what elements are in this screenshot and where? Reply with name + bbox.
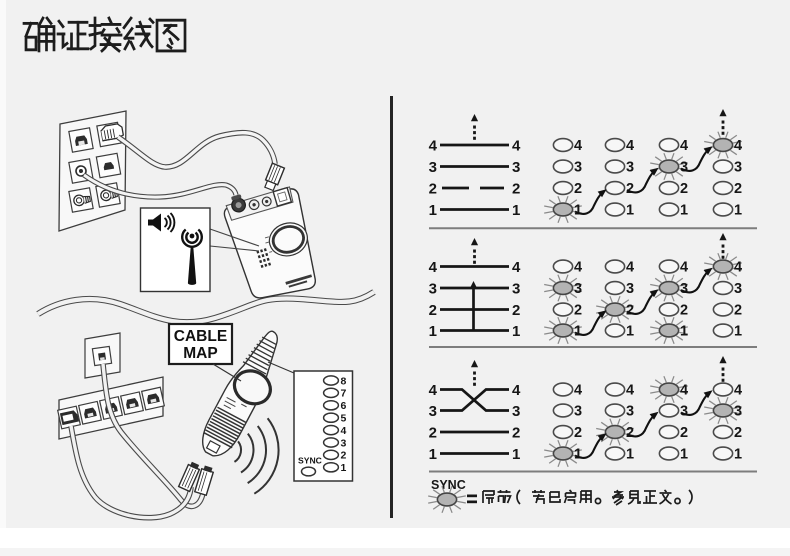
svg-text:4: 4 [680,260,688,276]
svg-text:3: 3 [680,404,688,420]
svg-text:7: 7 [341,388,347,400]
svg-text:3: 3 [626,404,634,420]
svg-text:1: 1 [626,324,634,340]
svg-text:1: 1 [429,446,437,463]
svg-text:1: 1 [574,447,582,463]
svg-text:3: 3 [512,159,520,176]
svg-text:2: 2 [574,425,582,441]
svg-text:2: 2 [626,181,634,197]
svg-text:2: 2 [512,425,520,442]
svg-text:4: 4 [626,138,634,154]
svg-text:1: 1 [341,462,347,474]
svg-text:4: 4 [626,260,634,276]
svg-text:4: 4 [680,138,688,154]
svg-text:2: 2 [680,181,688,197]
svg-text:2: 2 [734,181,742,197]
svg-text:4: 4 [512,138,521,155]
svg-text:1: 1 [574,324,582,340]
svg-text:2: 2 [512,302,520,319]
svg-text:1: 1 [680,203,688,219]
svg-text:4: 4 [734,383,742,399]
svg-text:5: 5 [341,413,347,425]
svg-text:1: 1 [680,324,688,340]
svg-text:1: 1 [512,323,520,340]
svg-text:4: 4 [734,138,742,154]
svg-text:4: 4 [512,259,521,276]
svg-text:1: 1 [626,447,634,463]
svg-text:4: 4 [512,382,521,399]
svg-text:2: 2 [512,181,520,198]
svg-text:3: 3 [734,281,742,297]
svg-text:2: 2 [680,425,688,441]
svg-text:3: 3 [574,404,582,420]
svg-text:8: 8 [341,375,347,387]
svg-text:4: 4 [626,383,634,399]
svg-text:3: 3 [680,160,688,176]
svg-text:3: 3 [512,403,520,420]
svg-text:3: 3 [429,403,437,420]
svg-text:3: 3 [626,281,634,297]
svg-text:SYNC: SYNC [298,456,322,466]
svg-text:1: 1 [512,446,520,463]
svg-text:3: 3 [734,160,742,176]
svg-text:1: 1 [429,202,437,219]
svg-text:2: 2 [429,425,437,442]
svg-text:3: 3 [574,160,582,176]
svg-text:3: 3 [341,437,347,449]
svg-text:3: 3 [429,159,437,176]
svg-text:1: 1 [626,203,634,219]
svg-text:4: 4 [574,138,582,154]
svg-text:4: 4 [341,425,347,437]
svg-text:1: 1 [734,447,742,463]
svg-text:2: 2 [734,425,742,441]
svg-text:1: 1 [734,203,742,219]
svg-text:1: 1 [512,202,520,219]
svg-text:3: 3 [626,160,634,176]
svg-text:4: 4 [429,138,438,155]
svg-text:2: 2 [626,303,634,319]
svg-text:1: 1 [734,324,742,340]
svg-text:2: 2 [574,181,582,197]
svg-text:1: 1 [429,323,437,340]
svg-text:2: 2 [680,303,688,319]
svg-text:4: 4 [574,260,582,276]
svg-text:1: 1 [574,203,582,219]
svg-text:4: 4 [734,260,742,276]
svg-text:CABLE: CABLE [174,328,227,345]
svg-text:4: 4 [680,383,688,399]
svg-text:2: 2 [574,303,582,319]
svg-text:2: 2 [341,450,347,462]
svg-text:6: 6 [341,400,347,412]
svg-text:3: 3 [574,281,582,297]
svg-text:3: 3 [734,404,742,420]
svg-text:1: 1 [680,447,688,463]
svg-text:2: 2 [429,302,437,319]
svg-text:3: 3 [512,281,520,298]
svg-text:2: 2 [734,303,742,319]
svg-text:4: 4 [429,382,438,399]
svg-text:4: 4 [574,383,582,399]
svg-text:3: 3 [680,281,688,297]
svg-text:4: 4 [429,259,438,276]
svg-text:3: 3 [429,281,437,298]
svg-text:2: 2 [626,425,634,441]
svg-text:2: 2 [429,181,437,198]
svg-text:MAP: MAP [183,345,217,362]
